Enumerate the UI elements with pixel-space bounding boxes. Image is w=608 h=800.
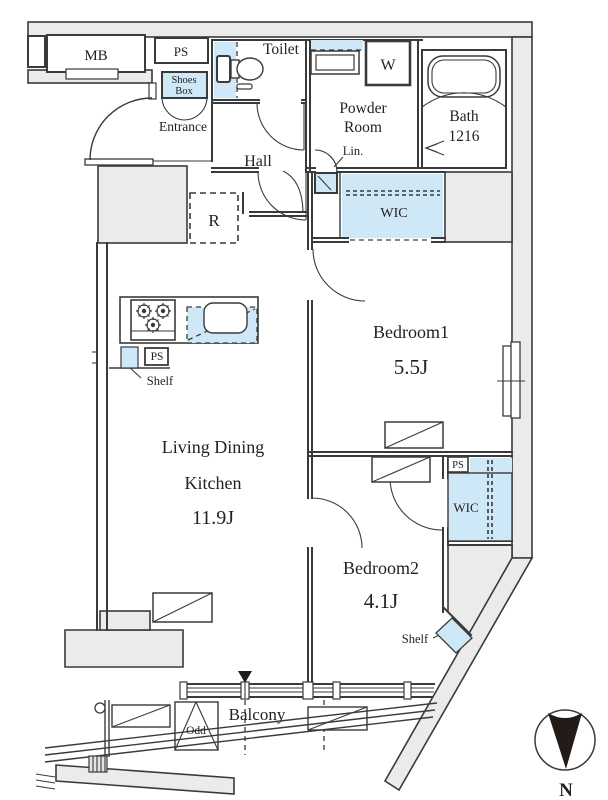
structural-column-entrance [98,166,187,243]
wic-bedroom2-label: WIC [453,500,478,515]
linen-door-arc [315,150,337,172]
lin-leader-line [334,157,343,167]
ps-top-label: PS [174,44,188,59]
structural-column-bath [445,172,512,242]
ldk-size-label: 11.9J [192,507,234,529]
shelf-kitchen [121,347,138,368]
ldk-label-2: Kitchen [185,473,242,493]
entrance-door-jamb [149,83,156,99]
floor-plan-page: N MB PS Shoes Box Toilet Entrance Powder… [0,0,608,800]
sink-icon [204,303,247,333]
balcony-label: Balcony [229,705,286,724]
shoes-box-label-2: Box [175,86,193,97]
entrance-label: Entrance [159,119,207,134]
shoes-box-label-1: Shoes [171,75,196,86]
shelf-bedroom2-label: Shelf [402,632,429,646]
bedroom2-size-label: 4.1J [364,589,398,613]
bedroom1-label: Bedroom1 [373,322,449,342]
pipe-hatch-icon [89,756,107,772]
balcony-area [36,671,437,789]
mb-label: MB [84,48,107,64]
balcony-slab [56,765,234,794]
shelf-kitchen-label: Shelf [147,374,174,388]
partition-marker-icon [238,671,252,683]
door-sill [66,69,118,79]
powder-room-label-1: Powder [339,100,387,117]
kitchen-counter [120,297,258,343]
shoes-box-door-arc [162,98,184,120]
bath-label: Bath [449,108,479,125]
toilet-label: Toilet [263,41,300,58]
bath-size-label: 1216 [449,128,480,145]
right-outer-wall [512,37,532,558]
bedroom1-door-arc [313,249,365,301]
washer-label: W [380,57,396,74]
entrance-side-wall [85,159,153,165]
wic2-door-arc [390,478,442,530]
refrigerator-label: R [208,211,220,230]
ps-kitchen-label: PS [151,351,164,363]
odd-label: Odd [186,725,206,737]
wic-top-label: WIC [380,206,407,221]
compass: N [535,710,595,800]
toilet-door-arc [257,103,304,150]
ps-bedroom2-label: PS [452,460,464,471]
structural-column-balcony-left [65,630,183,667]
powder-room-label-2: Room [344,119,382,136]
bedroom2-door-arc [312,498,362,548]
bathtub-icon [428,56,500,97]
ldk-label-1: Living Dining [162,437,265,457]
washbasin-icon [311,40,363,74]
bedroom2-label: Bedroom2 [343,558,419,578]
drain-icon [95,703,105,713]
linen-label: Lin. [343,144,363,158]
compass-north-label: N [559,780,573,800]
sliding-windows [180,682,434,699]
hall-leader-line [283,171,303,211]
bedroom1-size-label: 5.5J [394,355,428,379]
shoes-box-door-arc [184,98,207,120]
floor-plan-drawing: N MB PS Shoes Box Toilet Entrance Powder… [0,0,608,800]
hall-label: Hall [244,153,272,170]
meter-box-small [28,36,45,67]
entrance-door-arc [90,98,152,160]
